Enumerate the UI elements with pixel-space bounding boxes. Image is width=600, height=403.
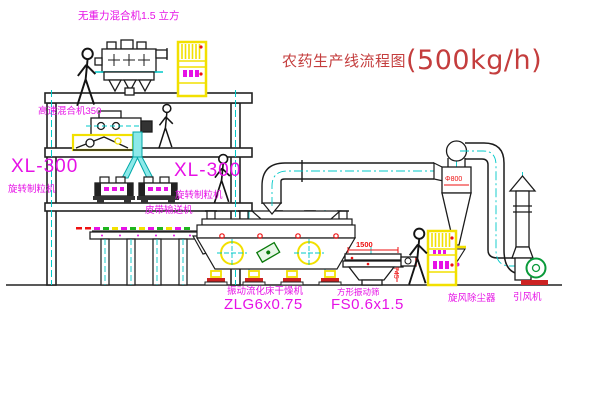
belt-conveyor-label: 皮带输送机 xyxy=(145,206,193,216)
cabinet-display-marks xyxy=(183,70,199,77)
gravity-free-mixer xyxy=(95,40,167,95)
control-cabinet-1 xyxy=(178,42,206,96)
drawing-title: 农药生产线流程图 (500kg/h) xyxy=(282,44,542,76)
fan-label: 引风机 xyxy=(513,293,542,303)
sieve-height-dimension: 745 xyxy=(392,267,399,279)
induced-draft-fan xyxy=(515,258,548,285)
cyclone-diameter-dimension: Φ800 xyxy=(445,176,462,183)
vibrating-sieve xyxy=(343,247,416,285)
granulator-right xyxy=(137,177,179,203)
title-capacity: (500kg/h) xyxy=(406,45,542,76)
worker-figure-second-floor xyxy=(159,104,173,148)
granulator-right-name-label: 旋转制粒机 xyxy=(175,191,223,201)
granulator-left-model-label: XL-300 xyxy=(11,157,78,176)
sieve-length-dimension: 1500 xyxy=(356,241,373,249)
fluid-bed-dryer xyxy=(197,210,355,286)
cad-process-flow-drawing: 农药生产线流程图 (500kg/h) 无重力混合机1.5 立方 高速混合机350… xyxy=(0,0,600,403)
gravity-mixer-label: 无重力混合机1.5 立方 xyxy=(78,11,180,22)
high-speed-mixer-label: 高速混合机350 xyxy=(38,107,101,117)
granulator-left-name-label: 旋转制粒机 xyxy=(8,185,56,195)
granulator-right-model-label: XL-300 xyxy=(174,161,241,180)
granulator-left xyxy=(93,177,135,203)
exhaust-duct xyxy=(252,160,448,219)
title-text: 农药生产线流程图 xyxy=(282,50,406,71)
control-cabinet-2 xyxy=(428,231,456,285)
dryer-feet xyxy=(205,271,341,285)
sieve-model-label: FS0.6x1.5 xyxy=(331,297,404,312)
cyclone-label: 旋风除尘器 xyxy=(448,294,496,304)
dryer-model-label: ZLG6x0.75 xyxy=(224,297,303,312)
belt-conveyor xyxy=(76,227,211,285)
